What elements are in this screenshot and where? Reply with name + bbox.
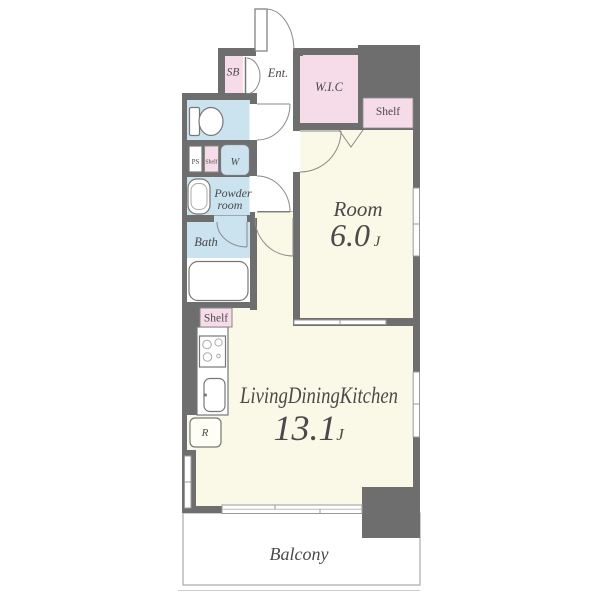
shelf-mini-label: Shelf — [205, 159, 217, 166]
wall-corridor-right — [293, 48, 300, 326]
room-window — [413, 188, 419, 256]
bath-door-gap — [214, 216, 247, 223]
solid-block-top-right — [358, 45, 420, 98]
toilet-tank-icon — [190, 108, 200, 136]
entrance-label: Ent. — [267, 66, 288, 80]
ldk-entry-floor — [257, 218, 293, 326]
wall-wic-top — [303, 48, 358, 55]
wall-shelf-left — [358, 98, 363, 128]
powder-label-line2: room — [218, 198, 243, 212]
solid-block-bottom-right — [362, 487, 420, 538]
kitchen-sink-icon — [204, 379, 225, 412]
bath-label: Bath — [194, 235, 218, 249]
floorplan-svg: SB Ent. W.I.C Shelf Room 6.0 J PS Shelf … — [0, 0, 600, 600]
toilet-door-gap — [250, 104, 258, 140]
room-door-gap — [293, 131, 301, 172]
floorplan-canvas: SB Ent. W.I.C Shelf Room 6.0 J PS Shelf … — [0, 0, 600, 600]
wall-kitchen-side — [187, 327, 197, 415]
room-size-label: 6.0 — [330, 217, 370, 253]
entrance-door-leaf — [255, 9, 267, 51]
wall-toilet-top — [182, 93, 257, 100]
sb-label: SB — [227, 67, 240, 79]
balcony-label: Balcony — [270, 544, 329, 564]
ldk-floor-sliver — [232, 308, 257, 326]
kitchen-faucet-icon — [204, 394, 207, 397]
bathtub-icon — [189, 262, 248, 301]
toilet-bowl-icon — [199, 108, 223, 136]
washer-label: W — [231, 157, 241, 168]
ps-label: PS — [192, 158, 200, 166]
fridge-label: R — [201, 427, 209, 439]
ldk-size-label: 13.1 — [274, 408, 337, 448]
wall-shelf-kitchen-left — [187, 308, 200, 327]
ldk-name-label: LivingDiningKitchen — [239, 383, 398, 408]
shelf-top-label: Shelf — [376, 106, 400, 118]
wall-bath-bottom — [187, 302, 257, 308]
shelf-kitchen-label: Shelf — [204, 313, 228, 325]
wall-entrance-left — [218, 48, 225, 97]
wic-label: W.I.C — [315, 80, 344, 94]
